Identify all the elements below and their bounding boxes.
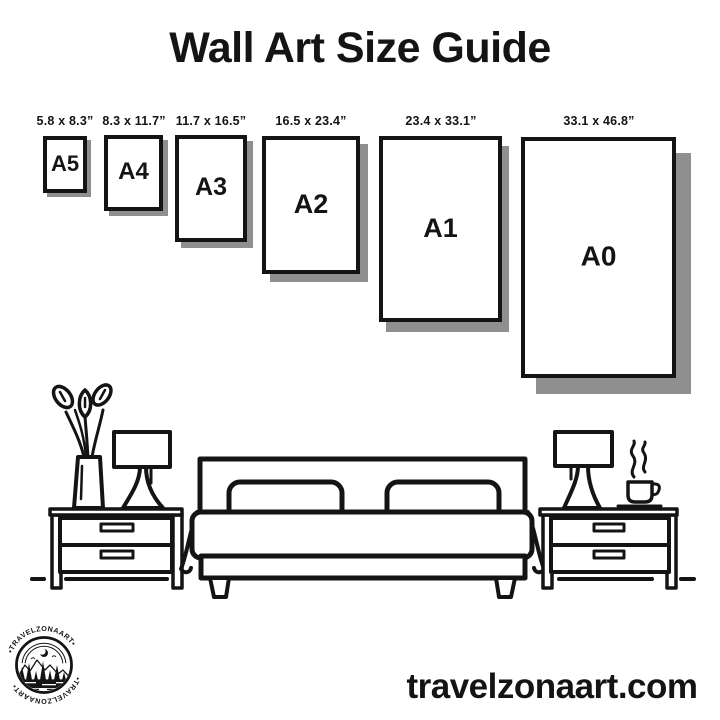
size-label-a1: A1 xyxy=(423,212,458,243)
size-caption-a4: 8.3 x 11.7” xyxy=(102,114,165,128)
size-box-a1: A1 xyxy=(379,136,502,322)
size-label-a4: A4 xyxy=(118,158,149,186)
website-url: travelzonaart.com xyxy=(406,667,697,707)
size-box-a2: A2 xyxy=(262,136,360,274)
nightstand-right-icon xyxy=(540,509,677,588)
size-box-a4: A4 xyxy=(104,135,163,211)
size-caption-a2: 16.5 x 23.4” xyxy=(275,114,346,128)
size-guide-poster: Wall Art Size Guide 5.8 x 8.3” 8.3 x 11.… xyxy=(0,0,720,720)
coffee-cup-icon xyxy=(618,441,661,506)
size-label-a5: A5 xyxy=(51,150,79,176)
table-lamp-right-icon xyxy=(555,432,612,508)
size-label-a2: A2 xyxy=(294,188,329,219)
size-label-a3: A3 xyxy=(195,173,227,202)
bedroom-illustration xyxy=(0,380,720,620)
size-box-a3: A3 xyxy=(175,135,247,242)
page-title: Wall Art Size Guide xyxy=(169,24,551,73)
plant-icon xyxy=(50,382,115,508)
table-lamp-left-icon xyxy=(114,432,170,508)
brand-logo-badge: •TRAVELZONAART• •TRAVELZONAART• xyxy=(0,616,92,720)
size-caption-a0: 33.1 x 46.8” xyxy=(563,114,634,128)
size-caption-a1: 23.4 x 33.1” xyxy=(405,114,476,128)
bed-icon xyxy=(181,459,544,597)
size-label-a0: A0 xyxy=(581,240,617,272)
size-caption-a3: 11.7 x 16.5” xyxy=(176,114,247,128)
size-box-a0: A0 xyxy=(521,137,676,378)
size-caption-a5: 5.8 x 8.3” xyxy=(37,114,94,128)
size-box-a5: A5 xyxy=(43,136,87,193)
nightstand-left-icon xyxy=(50,509,182,588)
